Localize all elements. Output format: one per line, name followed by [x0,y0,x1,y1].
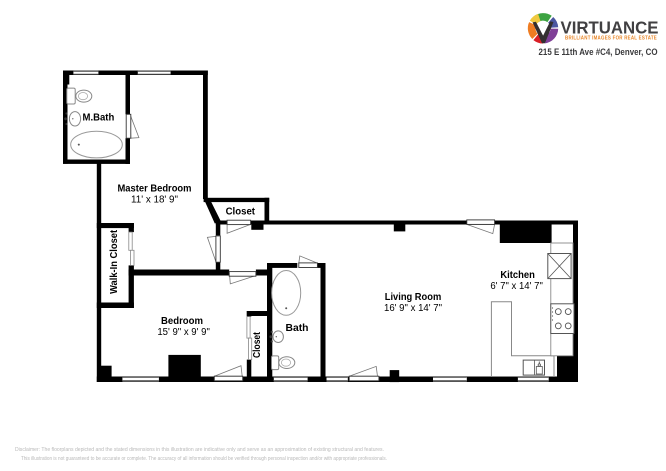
svg-text:Closet: Closet [252,331,263,358]
svg-text:11' x 18' 9": 11' x 18' 9" [131,194,178,205]
svg-text:Kitchen: Kitchen [500,270,535,281]
svg-text:BRILLIANT IMAGES FOR REAL ESTA: BRILLIANT IMAGES FOR REAL ESTATE [565,36,657,42]
svg-text:M.Bath: M.Bath [83,113,115,124]
svg-text:16' 9" x 14' 7": 16' 9" x 14' 7" [384,303,442,314]
svg-text:This illustration is not guara: This illustration is not guaranteed to b… [21,456,387,462]
svg-text:15' 9" x 9' 9": 15' 9" x 9' 9" [157,327,210,338]
svg-text:Bath: Bath [286,323,309,334]
svg-text:VIRTUANCE: VIRTUANCE [561,17,659,37]
svg-text:Closet: Closet [226,206,256,217]
svg-text:Bedroom: Bedroom [161,316,203,327]
svg-text:215 E 11th Ave #C4, Denver, CO: 215 E 11th Ave #C4, Denver, CO [539,47,658,58]
svg-text:Living Room: Living Room [385,292,442,303]
svg-text:6' 7" x 14' 7": 6' 7" x 14' 7" [490,281,543,292]
svg-text:Walk-In Closet: Walk-In Closet [109,229,120,294]
svg-text:Disclaimer: The floorplans dep: Disclaimer: The floorplans depicted and … [15,447,384,453]
svg-text:Master Bedroom: Master Bedroom [118,183,192,194]
